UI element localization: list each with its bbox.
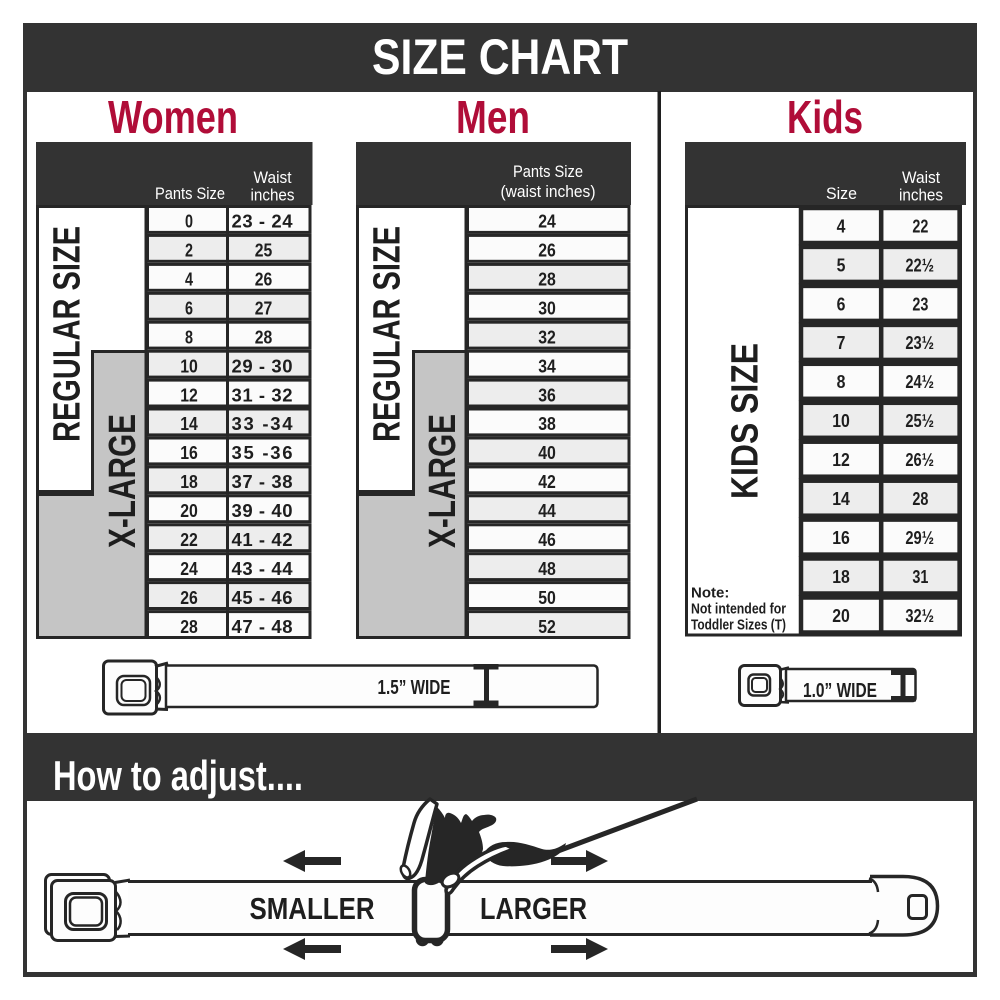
svg-text:SMALLER: SMALLER — [250, 891, 375, 926]
svg-text:inches: inches — [899, 186, 943, 205]
svg-text:28: 28 — [255, 326, 273, 347]
svg-text:How to adjust....: How to adjust.... — [53, 752, 303, 799]
svg-text:6: 6 — [185, 298, 193, 319]
svg-text:28: 28 — [180, 616, 198, 637]
svg-text:29 - 30: 29 - 30 — [232, 355, 293, 376]
svg-text:18: 18 — [832, 567, 850, 587]
svg-text:22: 22 — [912, 216, 928, 236]
svg-text:27: 27 — [255, 298, 273, 319]
svg-text:Women: Women — [108, 91, 238, 143]
svg-text:28: 28 — [538, 269, 556, 290]
svg-text:22½: 22½ — [905, 255, 934, 275]
svg-text:Not intended for: Not intended for — [691, 601, 786, 618]
svg-text:26: 26 — [180, 587, 198, 608]
svg-text:28: 28 — [912, 489, 928, 509]
svg-text:Toddler Sizes (T): Toddler Sizes (T) — [691, 617, 786, 634]
svg-text:4: 4 — [837, 216, 846, 236]
svg-text:(waist inches): (waist inches) — [501, 182, 596, 201]
svg-text:Waist: Waist — [902, 168, 940, 187]
svg-text:7: 7 — [837, 333, 846, 353]
svg-text:48: 48 — [538, 558, 556, 579]
svg-text:43 - 44: 43 - 44 — [232, 558, 294, 579]
svg-text:26½: 26½ — [905, 450, 934, 470]
svg-text:42: 42 — [538, 471, 556, 492]
svg-text:10: 10 — [180, 355, 198, 376]
svg-text:52: 52 — [538, 616, 556, 637]
svg-text:X-LARGE: X-LARGE — [422, 414, 464, 548]
svg-text:Pants Size: Pants Size — [155, 184, 225, 203]
svg-text:37 - 38: 37 - 38 — [232, 471, 293, 492]
svg-text:Kids: Kids — [787, 91, 863, 143]
svg-text:2: 2 — [185, 240, 193, 261]
svg-text:Size: Size — [826, 184, 857, 203]
svg-text:24: 24 — [180, 558, 198, 579]
svg-text:22: 22 — [180, 529, 198, 550]
svg-text:34: 34 — [538, 355, 556, 376]
svg-text:Men: Men — [456, 91, 530, 143]
svg-text:12: 12 — [180, 384, 198, 405]
svg-text:23: 23 — [912, 294, 928, 314]
svg-text:32: 32 — [538, 326, 556, 347]
svg-text:REGULAR SIZE: REGULAR SIZE — [47, 226, 89, 442]
svg-text:18: 18 — [180, 471, 198, 492]
svg-text:REGULAR SIZE: REGULAR SIZE — [367, 226, 409, 442]
svg-text:50: 50 — [538, 587, 556, 608]
svg-text:inches: inches — [251, 186, 295, 205]
svg-text:35 -36: 35 -36 — [232, 442, 293, 463]
svg-text:33 -34: 33 -34 — [232, 413, 294, 434]
svg-text:25: 25 — [255, 240, 273, 261]
svg-text:20: 20 — [180, 500, 198, 521]
svg-text:20: 20 — [832, 606, 850, 626]
svg-text:41 - 42: 41 - 42 — [232, 529, 293, 550]
svg-text:5: 5 — [837, 255, 846, 275]
svg-text:26: 26 — [538, 240, 556, 261]
svg-text:32½: 32½ — [905, 606, 934, 626]
svg-text:LARGER: LARGER — [480, 891, 587, 926]
svg-text:SIZE CHART: SIZE CHART — [372, 29, 628, 85]
svg-text:46: 46 — [538, 529, 556, 550]
svg-text:16: 16 — [180, 442, 198, 463]
svg-text:30: 30 — [538, 298, 556, 319]
svg-text:8: 8 — [185, 326, 193, 347]
svg-text:16: 16 — [832, 528, 850, 548]
svg-text:23 - 24: 23 - 24 — [232, 211, 294, 232]
svg-text:12: 12 — [832, 450, 850, 470]
svg-text:KIDS SIZE: KIDS SIZE — [725, 343, 767, 499]
svg-text:45 - 46: 45 - 46 — [232, 587, 293, 608]
svg-text:1.0” WIDE: 1.0” WIDE — [803, 680, 877, 702]
svg-text:14: 14 — [832, 489, 850, 509]
svg-text:1.5” WIDE: 1.5” WIDE — [378, 677, 451, 699]
svg-text:4: 4 — [185, 269, 194, 290]
svg-text:39 - 40: 39 - 40 — [232, 500, 293, 521]
svg-text:31 - 32: 31 - 32 — [232, 384, 293, 405]
svg-text:8: 8 — [837, 372, 846, 392]
svg-text:Waist: Waist — [254, 168, 292, 187]
svg-text:X-LARGE: X-LARGE — [102, 414, 144, 548]
svg-text:10: 10 — [832, 411, 850, 431]
svg-text:31: 31 — [912, 567, 928, 587]
svg-text:24: 24 — [538, 211, 556, 232]
svg-text:26: 26 — [255, 269, 273, 290]
svg-text:0: 0 — [185, 211, 193, 232]
svg-text:36: 36 — [538, 384, 556, 405]
svg-text:6: 6 — [837, 294, 846, 314]
svg-text:40: 40 — [538, 442, 556, 463]
svg-text:38: 38 — [538, 413, 556, 434]
svg-text:Note:: Note: — [691, 585, 729, 602]
svg-text:44: 44 — [538, 500, 556, 521]
svg-text:14: 14 — [180, 413, 198, 434]
svg-text:47 - 48: 47 - 48 — [232, 616, 293, 637]
svg-text:Pants Size: Pants Size — [513, 162, 583, 181]
svg-text:24½: 24½ — [905, 372, 934, 392]
svg-text:23½: 23½ — [905, 333, 934, 353]
svg-text:25½: 25½ — [905, 411, 934, 431]
svg-text:29½: 29½ — [905, 528, 934, 548]
